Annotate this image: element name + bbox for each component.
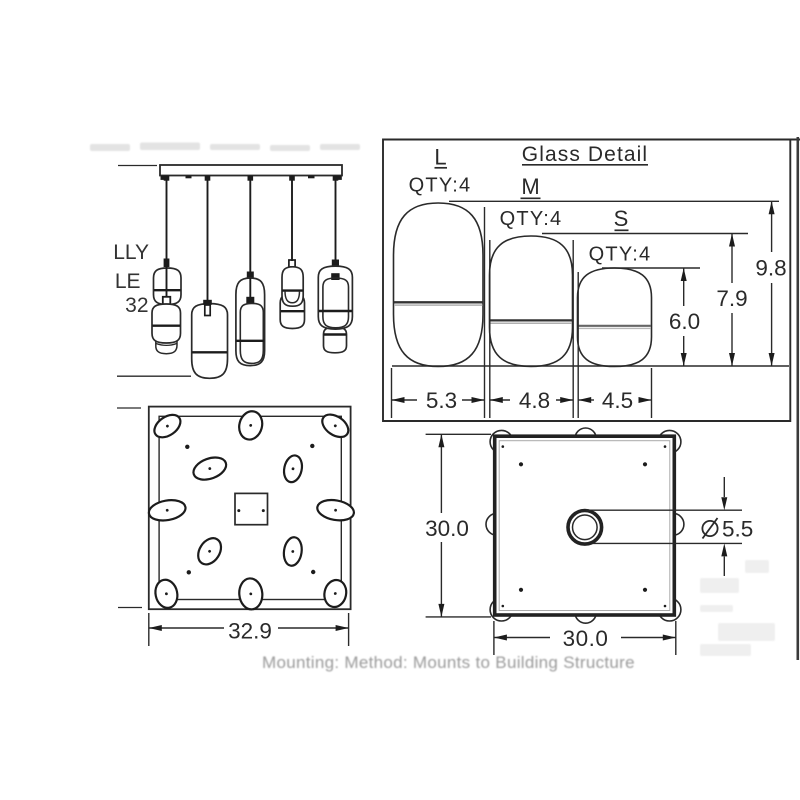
svg-text:6.0: 6.0 xyxy=(669,309,700,334)
svg-text:7.9: 7.9 xyxy=(716,286,747,311)
svg-text:4.5: 4.5 xyxy=(602,388,633,413)
svg-text:32.9: 32.9 xyxy=(228,619,272,644)
svg-text:LE: LE xyxy=(115,270,141,293)
svg-text:9.8: 9.8 xyxy=(755,256,786,281)
svg-text:QTY:4: QTY:4 xyxy=(589,244,652,266)
svg-text:S: S xyxy=(614,206,629,231)
svg-text:LLY: LLY xyxy=(113,241,149,264)
svg-text:QTY:4: QTY:4 xyxy=(409,175,472,197)
svg-text:32: 32 xyxy=(125,294,148,317)
svg-text:QTY:4: QTY:4 xyxy=(500,208,563,230)
svg-text:Glass Detail: Glass Detail xyxy=(522,143,648,166)
svg-text:5.5: 5.5 xyxy=(722,517,753,542)
svg-text:30.0: 30.0 xyxy=(563,626,609,651)
svg-text:L: L xyxy=(434,145,446,170)
svg-text:M: M xyxy=(521,174,539,199)
svg-text:30.0: 30.0 xyxy=(425,516,469,541)
svg-text:4.8: 4.8 xyxy=(519,388,550,413)
svg-text:5.3: 5.3 xyxy=(426,388,457,413)
svg-text:Mounting: Method: Mounts to Bu: Mounting: Method: Mounts to Building Str… xyxy=(262,653,635,672)
